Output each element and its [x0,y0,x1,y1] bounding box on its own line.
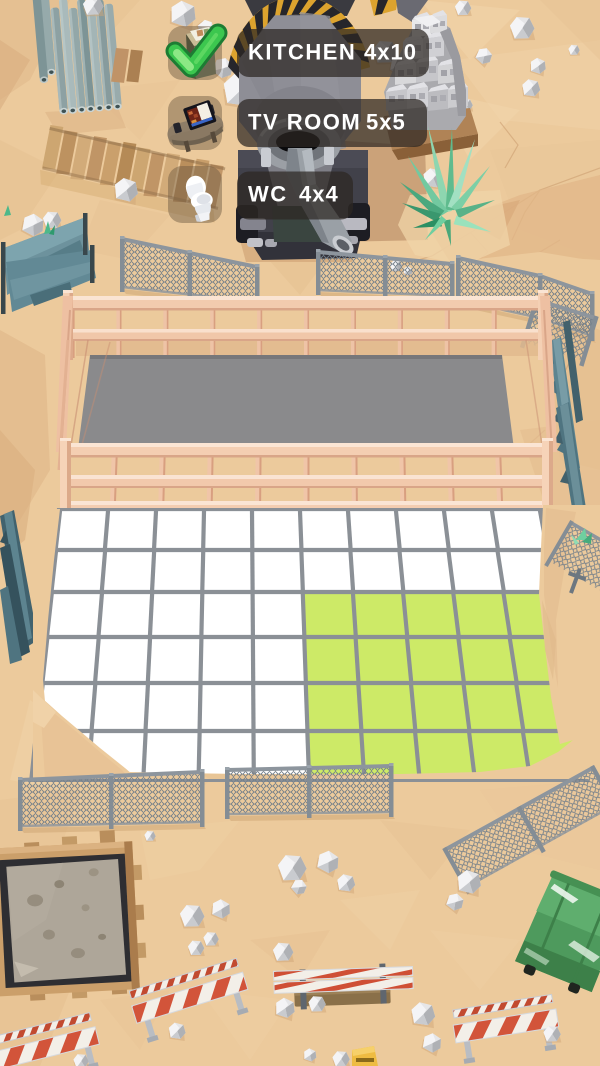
svg-text:KITCHEN: KITCHEN [248,40,356,65]
svg-text:4x10: 4x10 [364,40,417,65]
svg-text:5x5: 5x5 [366,110,406,135]
svg-text:WC: WC [248,182,288,207]
svg-text:TV ROOM: TV ROOM [248,110,361,135]
svg-text:4x4: 4x4 [299,182,339,207]
